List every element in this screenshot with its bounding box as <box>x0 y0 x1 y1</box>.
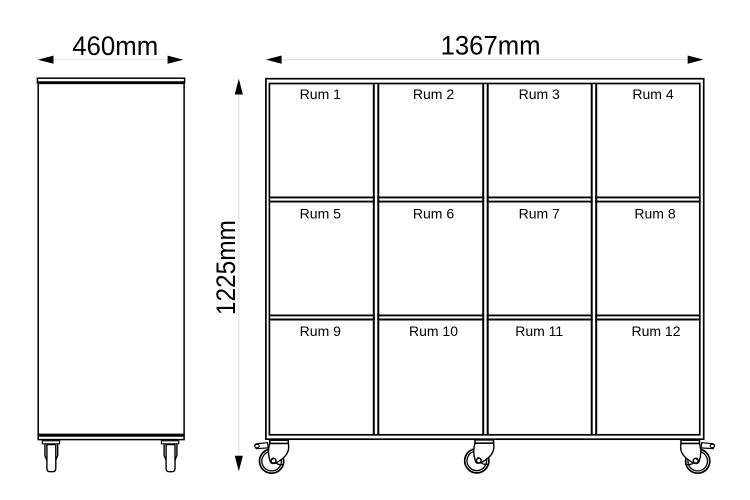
svg-text:1225mm: 1225mm <box>211 220 241 315</box>
svg-text:460mm: 460mm <box>72 31 158 61</box>
svg-text:Rum 2: Rum 2 <box>413 86 454 102</box>
svg-text:Rum 3: Rum 3 <box>519 86 560 102</box>
svg-text:Rum 10: Rum 10 <box>409 323 458 339</box>
svg-text:Rum 11: Rum 11 <box>515 323 563 339</box>
svg-text:Rum 5: Rum 5 <box>300 206 341 222</box>
svg-text:Rum 8: Rum 8 <box>634 206 675 222</box>
svg-text:Rum 7: Rum 7 <box>519 206 560 222</box>
svg-text:Rum 6: Rum 6 <box>413 206 454 222</box>
svg-text:Rum 1: Rum 1 <box>300 86 341 102</box>
svg-text:Rum 12: Rum 12 <box>631 323 680 339</box>
svg-text:Rum 9: Rum 9 <box>300 323 341 339</box>
svg-text:Rum 4: Rum 4 <box>632 86 673 102</box>
svg-text:1367mm: 1367mm <box>441 31 541 61</box>
